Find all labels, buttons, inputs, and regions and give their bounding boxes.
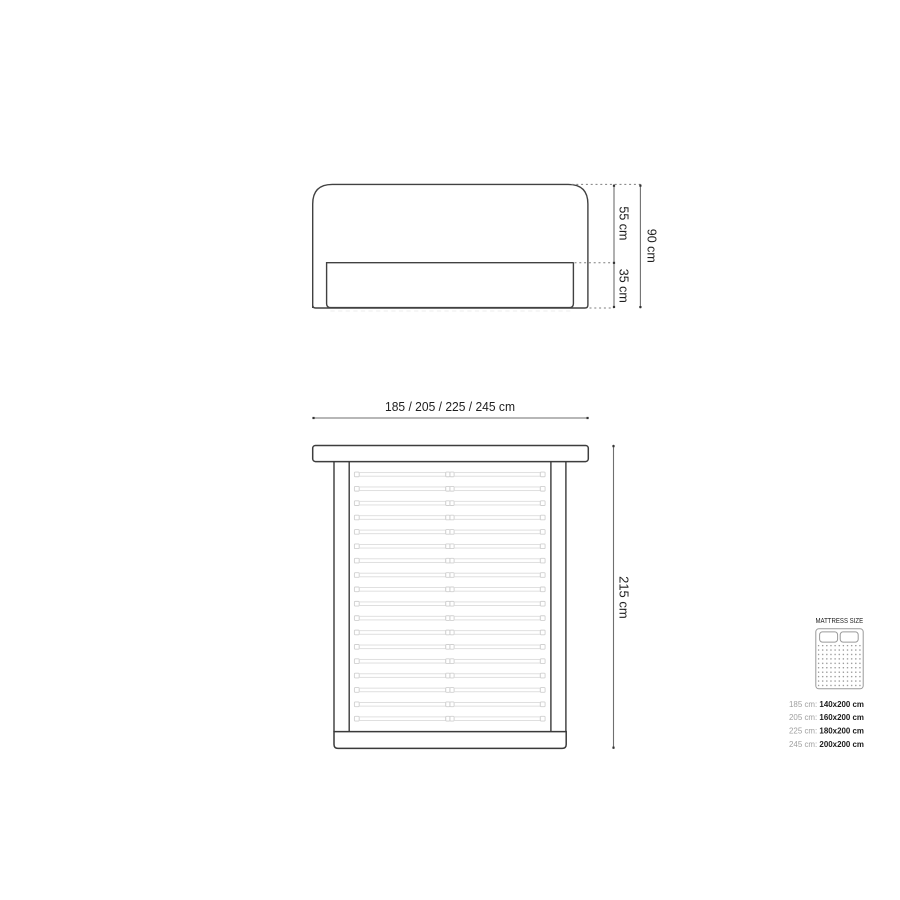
svg-text:35 cm: 35 cm	[617, 269, 632, 303]
svg-text:185 / 205 / 225 / 245 cm: 185 / 205 / 225 / 245 cm	[385, 399, 515, 414]
svg-text:90 cm: 90 cm	[644, 229, 659, 263]
svg-text:185 cm: 140x200 cm: 185 cm: 140x200 cm	[789, 700, 864, 709]
svg-text:225 cm: 180x200 cm: 225 cm: 180x200 cm	[789, 727, 864, 736]
svg-text:245 cm: 200x200 cm: 245 cm: 200x200 cm	[789, 740, 864, 749]
svg-text:205 cm: 160x200 cm: 205 cm: 160x200 cm	[789, 713, 864, 722]
svg-text:215 cm: 215 cm	[617, 576, 632, 619]
svg-text:55 cm: 55 cm	[617, 206, 632, 240]
svg-text:MATTRESS SIZE: MATTRESS SIZE	[815, 616, 863, 625]
